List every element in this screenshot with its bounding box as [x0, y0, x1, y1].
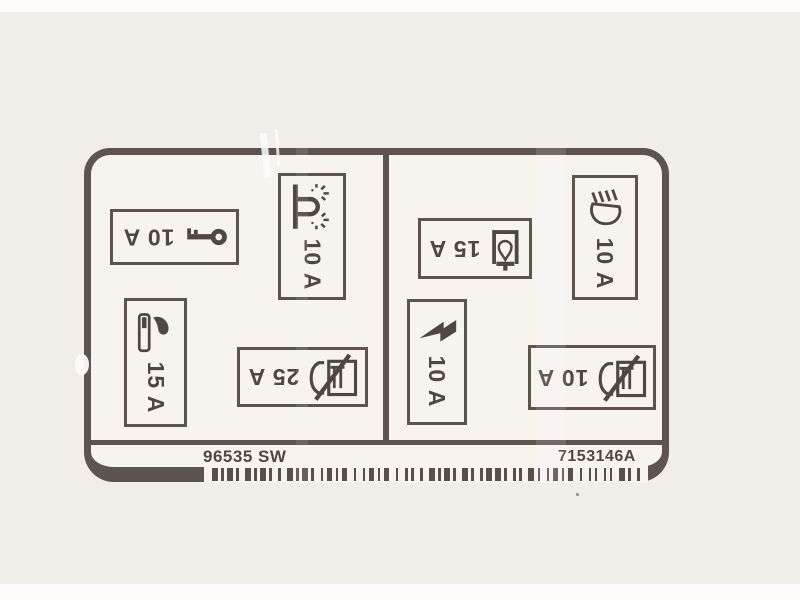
bulb-icon	[489, 227, 521, 271]
fuse-cell-parking-light: 10 A	[278, 173, 346, 300]
fuse-cell-ignition-key: 10 A	[110, 209, 239, 265]
cigarette-lighter-icon	[137, 312, 175, 352]
fuse-rating: 10 A	[537, 364, 589, 391]
scan-speck	[576, 493, 579, 496]
scanned-page-background: 10 A 15 A	[0, 12, 800, 584]
headlight-icon	[587, 186, 623, 228]
part-number: 96535 SW	[203, 447, 286, 467]
fuse-rating: 25 A	[247, 364, 299, 391]
fuse-cell-crossed-device-10: 10 A	[528, 345, 656, 410]
fuse-cell-cigarette-lighter: 15 A	[124, 298, 187, 427]
fuse-rating: 15 A	[142, 361, 169, 413]
serial-number: 7153146A	[558, 448, 636, 466]
fuse-rating: 10 A	[424, 356, 451, 408]
fuse-rating: 10 A	[122, 224, 174, 251]
fuse-cell-crossed-device-25: 25 A	[237, 347, 368, 407]
parking-light-icon	[292, 183, 333, 229]
fuse-cell-lightning: 10 A	[407, 299, 467, 425]
vertical-section-divider	[383, 155, 389, 443]
fuse-rating: 10 A	[592, 237, 619, 289]
fuse-rating: 15 A	[429, 235, 481, 262]
crossed-device-icon	[597, 354, 647, 402]
key-icon	[183, 226, 227, 249]
fuse-box-label: 10 A 15 A	[84, 148, 669, 482]
fuse-cell-interior-bulb: 15 A	[418, 218, 532, 279]
fuse-cell-headlight: 10 A	[572, 175, 638, 300]
footer-divider	[91, 440, 662, 445]
barcode	[204, 466, 648, 483]
lightning-bolt-icon	[417, 317, 457, 347]
crossed-device-icon	[308, 353, 358, 401]
fuse-rating: 10 A	[299, 238, 326, 290]
barcode-bars	[212, 468, 640, 481]
